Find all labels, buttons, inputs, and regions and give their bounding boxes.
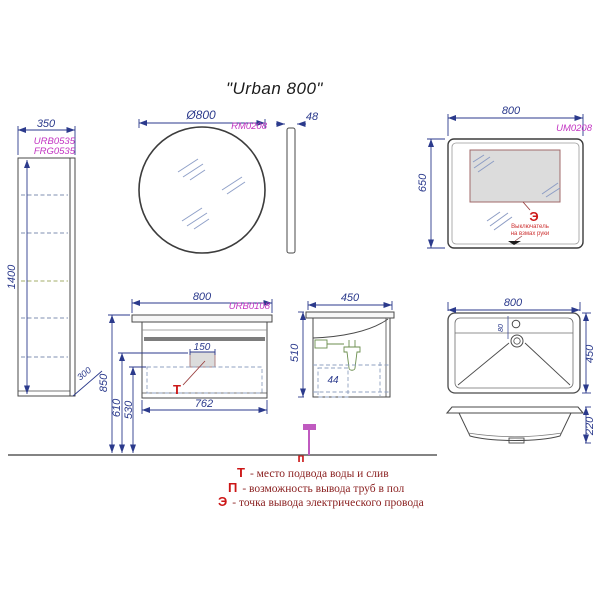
vanity-front-view xyxy=(132,315,272,398)
page-title: "Urban 800" xyxy=(226,79,323,99)
faucet-offset-dim: 80 xyxy=(498,324,505,332)
floor-pipe-marker xyxy=(303,424,316,455)
round-mirror-diameter-dim: Ø800 xyxy=(185,108,216,122)
vanity-shelf-band xyxy=(144,337,265,341)
sink-top-view xyxy=(448,313,580,393)
vanity-side-view xyxy=(306,312,394,397)
height-530-dim: 530 xyxy=(123,400,135,419)
height-850-dim: 850 xyxy=(98,373,110,392)
electric-point-marker: Э xyxy=(529,209,538,224)
round-mirror-view xyxy=(139,127,265,253)
vanity-inner-width-dim: 762 xyxy=(195,398,213,410)
legend-row-water: Т - место подвода воды и слив xyxy=(237,465,389,480)
vanity-code: URB0108 xyxy=(220,302,270,312)
legend-text-t: - место подвода воды и слив xyxy=(250,468,389,480)
siphon-box xyxy=(190,352,215,367)
led-mirror-width-dim: 800 xyxy=(502,105,521,117)
sink-front-view xyxy=(447,407,583,443)
mirror-thickness-dim: 48 xyxy=(306,111,319,123)
cabinet-code-line2: FRG0535 xyxy=(28,147,75,157)
sink-width-dim: 800 xyxy=(504,297,523,309)
floor-pipe-letter: п xyxy=(297,451,304,465)
switch-note-line2: на взмах руки xyxy=(511,231,550,237)
cabinet-code: URB0535 FRG0535 xyxy=(28,137,75,157)
cabinet-height-dim: 1400 xyxy=(6,264,18,289)
side-depth-dim: 450 xyxy=(341,292,360,304)
legend-key-e: Э xyxy=(218,494,227,509)
side-offset-dim: 44 xyxy=(327,375,339,386)
led-mirror-height-dim: 650 xyxy=(417,173,429,192)
round-mirror-code: RM0208 xyxy=(222,122,267,132)
mirror-lit-area xyxy=(470,150,560,202)
cabinet-width-dim: 350 xyxy=(37,118,56,130)
legend-row-pipes: П - возможность вывода труб в пол xyxy=(228,480,404,495)
legend-key-p: П xyxy=(228,480,237,495)
technical-drawing-canvas: 350 1400 300 Ø800 48 800 650 Э Выключате… xyxy=(0,0,600,600)
switch-note-line1: Выключатель xyxy=(511,224,549,230)
led-mirror-code: UM0208 xyxy=(544,124,592,134)
legend-text-e: - точка вывода электрического провода xyxy=(232,497,424,509)
siphon-box-dim: 150 xyxy=(194,342,211,353)
water-point-marker: Т xyxy=(173,382,181,397)
cabinet-bottom-gap-dim: 300 xyxy=(75,365,93,382)
round-mirror-side-view xyxy=(276,124,306,253)
vanity-width-dim: 800 xyxy=(193,291,212,303)
height-610-dim: 610 xyxy=(111,398,123,417)
sink-depth-dim: 450 xyxy=(584,344,596,363)
legend-key-t: Т xyxy=(237,465,245,480)
sink-height-dim: 220 xyxy=(584,416,596,436)
legend-row-electric: Э - точка вывода электрического провода xyxy=(218,494,424,509)
side-height-dim: 510 xyxy=(289,343,301,362)
